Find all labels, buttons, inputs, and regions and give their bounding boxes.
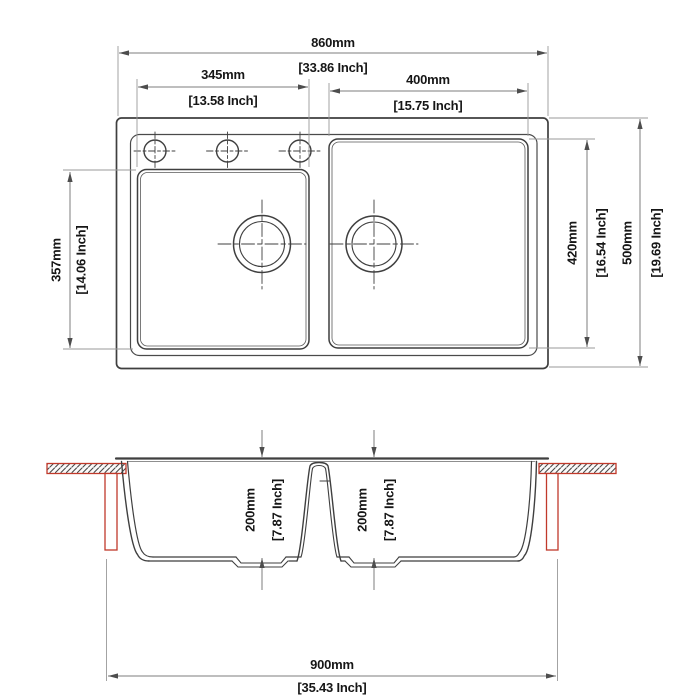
mounting-clip-left (105, 474, 117, 551)
mounting-clip-right (547, 474, 559, 551)
countertop-right-hatch (539, 464, 616, 474)
dim-overall-width-in-label: [33.86 Inch] (298, 60, 367, 75)
dim-cutout-width-mm-label: 900mm (310, 657, 354, 672)
dim-left-bowl-depth-mm-label: 200mm (243, 488, 258, 532)
dim-right-bowl-length-in-label: [16.54 Inch] (594, 208, 609, 277)
technical-drawing: 860mm [33.86 Inch] 345mm [13.58 Inch] 40… (0, 0, 700, 700)
dim-right-bowl-width-in-label: [15.75 Inch] (393, 98, 462, 113)
dim-left-bowl-width-in-label: [13.58 Inch] (188, 93, 257, 108)
dim-overall-length-mm-label: 500mm (620, 221, 635, 265)
countertop-left-hatch (47, 464, 126, 474)
dim-cutout-width-in-label: [35.43 Inch] (297, 680, 366, 695)
dim-right-bowl-length-mm-label: 420mm (565, 221, 580, 265)
drawing-background (0, 0, 700, 700)
dim-overall-width-mm-label: 860mm (311, 35, 355, 50)
dim-left-bowl-length-in-label: [14.06 Inch] (74, 225, 89, 294)
dim-left-bowl-width-mm-label: 345mm (201, 67, 245, 82)
dim-right-bowl-depth-in-label: [7.87 Inch] (382, 479, 397, 541)
dim-right-bowl-width-mm-label: 400mm (406, 72, 450, 87)
dim-left-bowl-length-mm-label: 357mm (49, 238, 64, 282)
dim-right-bowl-depth-mm-label: 200mm (355, 488, 370, 532)
dim-overall-length-in-label: [19.69 Inch] (649, 208, 664, 277)
dim-left-bowl-depth-in-label: [7.87 Inch] (270, 479, 285, 541)
